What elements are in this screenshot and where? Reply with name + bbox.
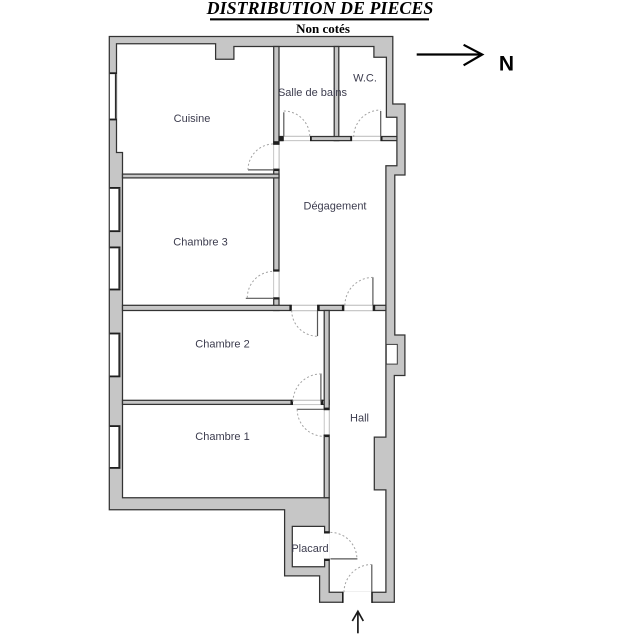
svg-text:Hall: Hall — [350, 413, 369, 425]
svg-text:W.C.: W.C. — [353, 73, 377, 85]
svg-text:Chambre 3: Chambre 3 — [173, 237, 227, 249]
svg-text:Placard: Placard — [291, 543, 328, 555]
svg-text:Non cotés: Non cotés — [296, 21, 350, 36]
svg-text:Dégagement: Dégagement — [304, 201, 367, 213]
svg-text:N: N — [499, 53, 514, 76]
svg-text:Chambre 2: Chambre 2 — [195, 339, 249, 351]
svg-text:DISTRIBUTION DE PIECES: DISTRIBUTION DE PIECES — [206, 0, 434, 18]
svg-text:Salle de bains: Salle de bains — [278, 87, 348, 99]
svg-text:Chambre 1: Chambre 1 — [195, 431, 249, 443]
svg-text:Cuisine: Cuisine — [174, 113, 211, 125]
